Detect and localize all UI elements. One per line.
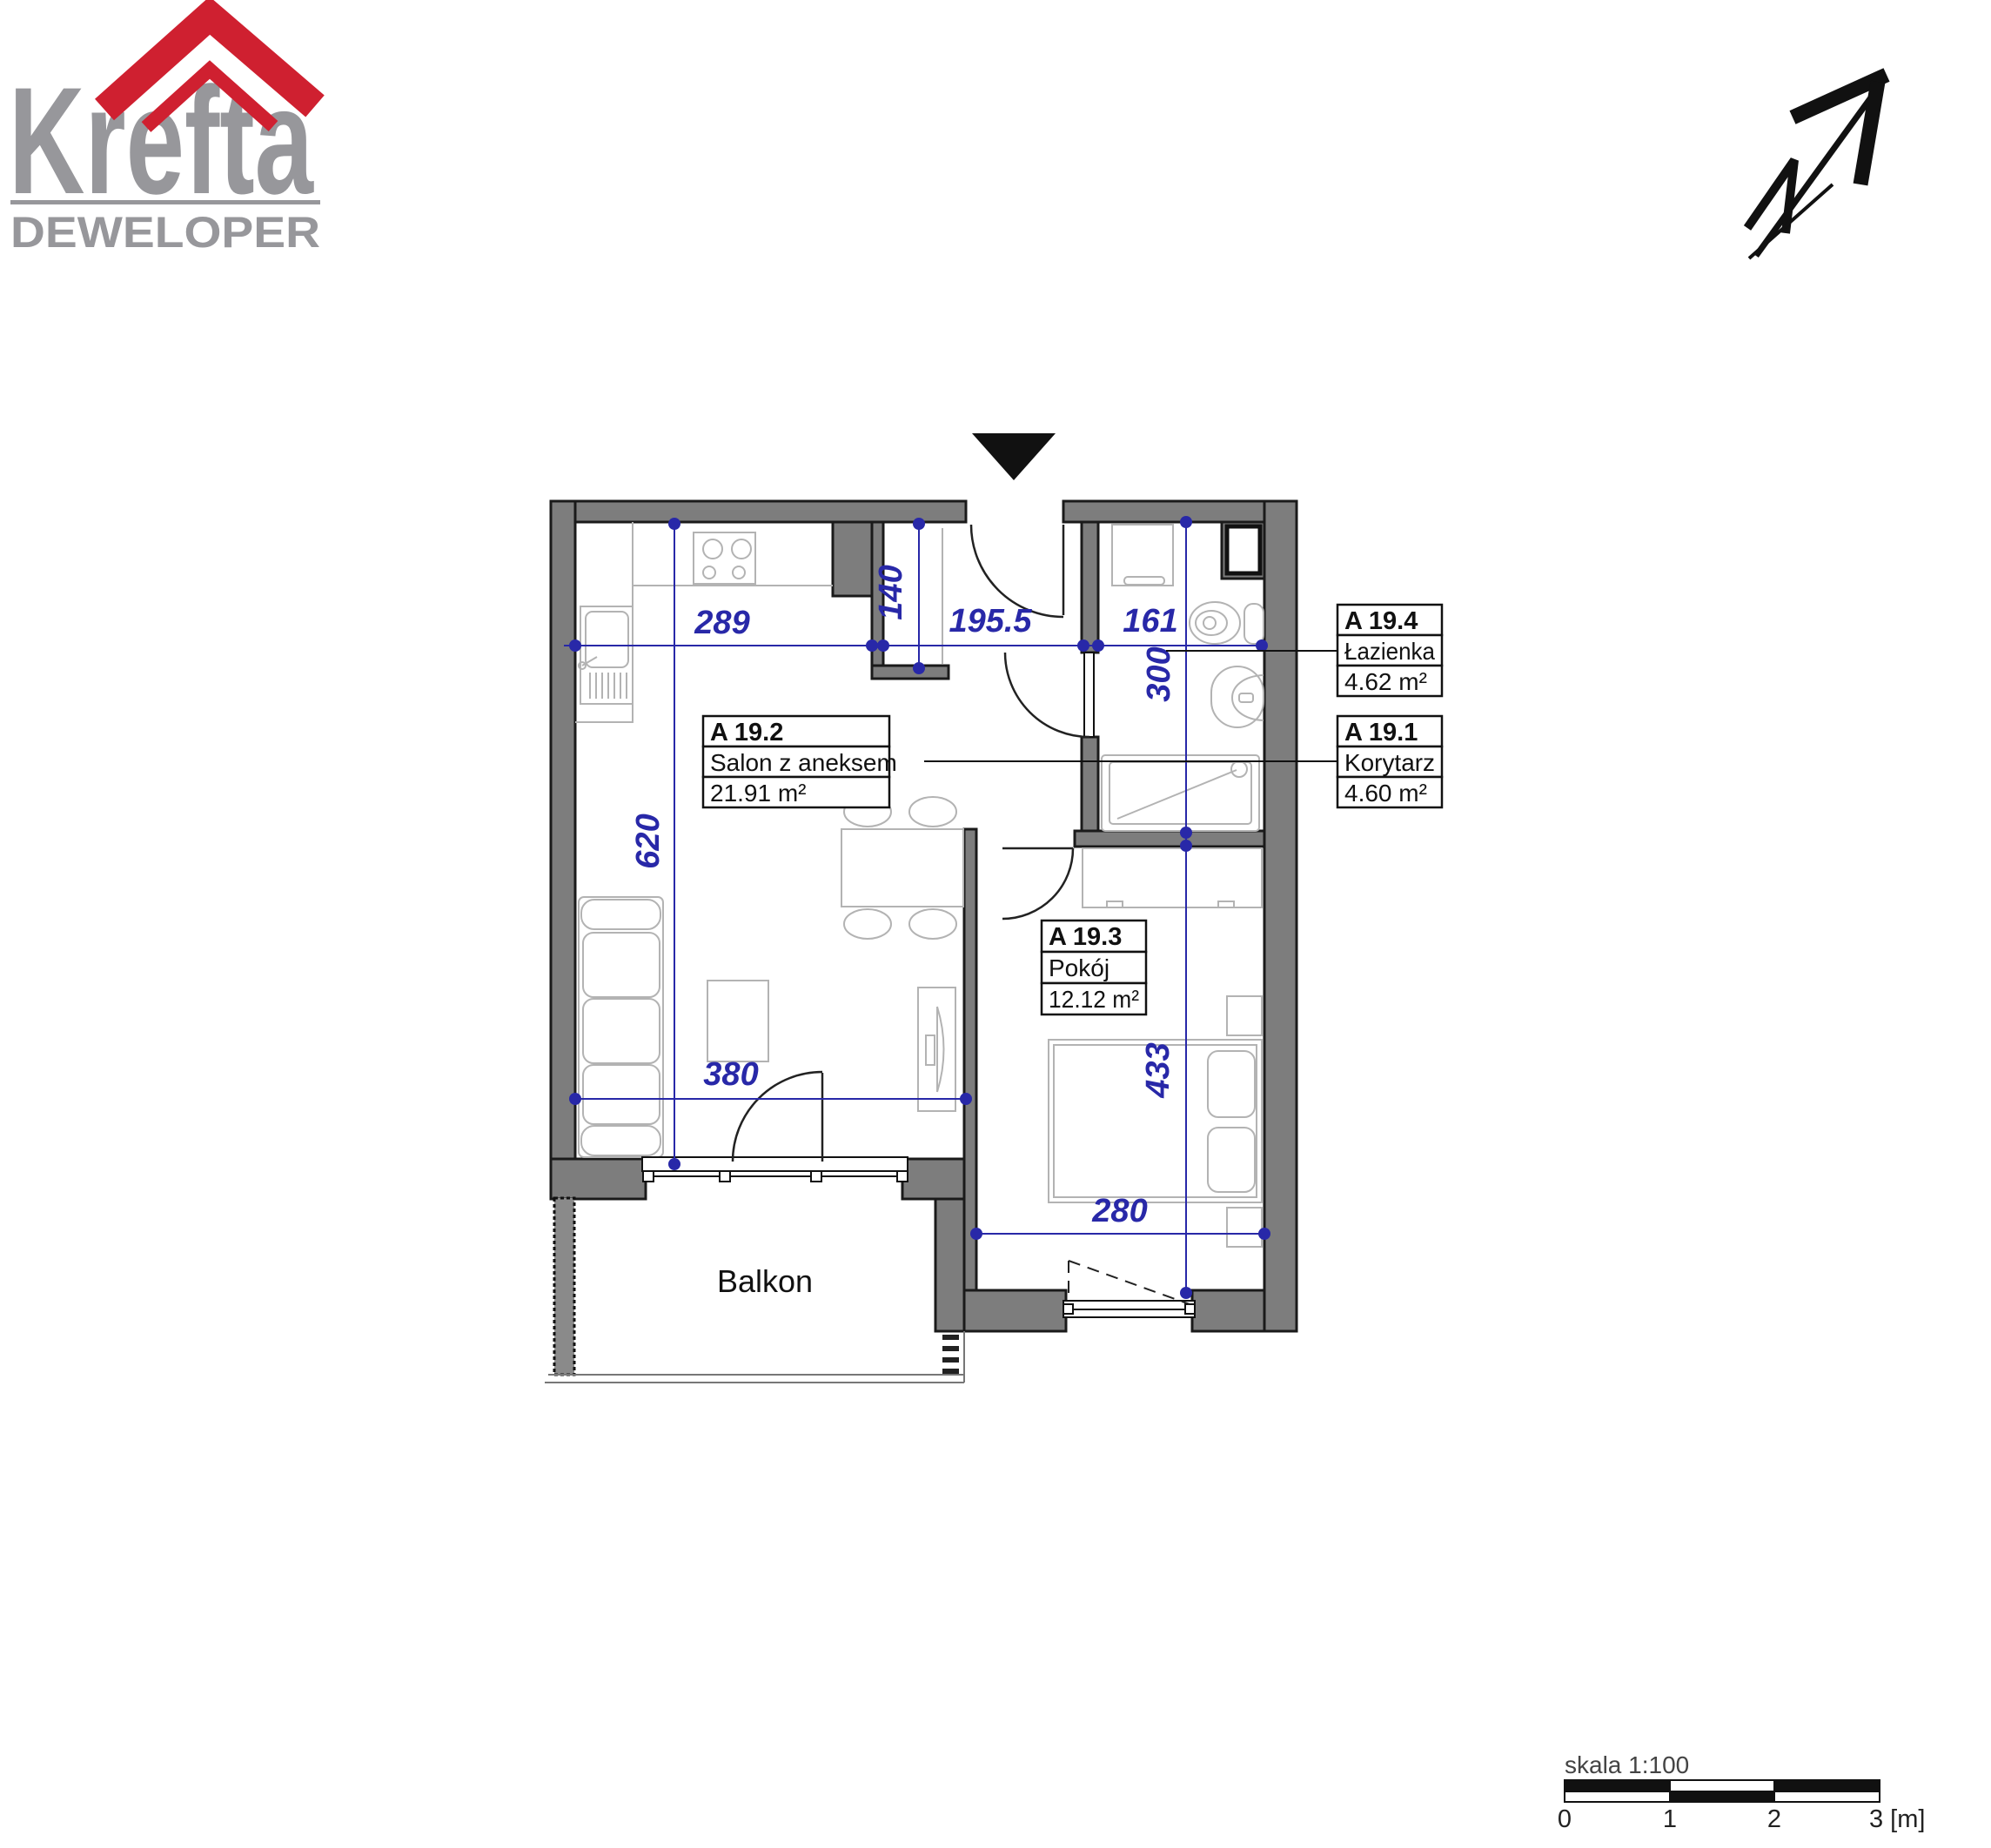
- scale-tick-0: 0: [1558, 1805, 1572, 1833]
- scale-tick-2: 2: [1767, 1805, 1781, 1833]
- scale-bar: skala 1:100 0 1 2 3 [m]: [1558, 1751, 1926, 1833]
- room-name: Łazienka: [1344, 638, 1435, 665]
- dim-140: 140: [873, 565, 909, 619]
- balcony-railing: [554, 1198, 574, 1375]
- window-opening-dashes: [1069, 1261, 1190, 1304]
- dim-300: 300: [1141, 646, 1177, 701]
- room-name: Salon z aneksem: [710, 749, 897, 776]
- nightstand: [1227, 1208, 1262, 1247]
- logo-divider: [10, 200, 320, 204]
- north-arrow-icon: [1747, 75, 1887, 258]
- room-label-pokoj: A 19.3 Pokój 12.12 m²: [1042, 921, 1146, 1014]
- balcony-label: Balkon: [717, 1263, 813, 1299]
- dim-161: 161: [1123, 603, 1177, 639]
- toilet: [1244, 604, 1264, 644]
- logo-subtitle-text: DEWELOPER: [10, 208, 320, 257]
- bathroom-door-leaf: [1084, 653, 1094, 737]
- balcony-railing-segment: [942, 1335, 959, 1374]
- dim-433: 433: [1140, 1042, 1176, 1098]
- scale-label: skala 1:100: [1565, 1751, 1689, 1778]
- nightstand: [1227, 996, 1262, 1035]
- kitchen-furniture: [575, 522, 942, 722]
- room-area: 4.62 m²: [1344, 668, 1427, 695]
- dim-195-5: 195.5: [949, 603, 1032, 639]
- room-id: A 19.1: [1344, 719, 1418, 747]
- chair: [909, 797, 956, 827]
- room-id: A 19.4: [1344, 607, 1418, 635]
- room-area: 21.91 m²: [710, 780, 807, 807]
- scale-bar-cells: [1565, 1780, 1880, 1802]
- developer-logo: Krefta DEWELOPER: [9, 16, 320, 257]
- dim-280: 280: [1091, 1193, 1147, 1229]
- dim-380: 380: [703, 1056, 758, 1093]
- room-area: 4.60 m²: [1344, 780, 1427, 807]
- chair: [844, 909, 891, 939]
- scale-tick-3: 3 [m]: [1869, 1805, 1925, 1833]
- room-label-korytarz: A 19.1 Korytarz 4.60 m²: [1337, 716, 1442, 807]
- duct-niche: [1227, 526, 1260, 573]
- floor-plan: 289 140 195.5 161 300 620 380 433 280 A …: [545, 433, 1442, 1383]
- room-name: Pokój: [1049, 954, 1109, 981]
- pillow: [1208, 1128, 1255, 1192]
- dim-289: 289: [694, 605, 749, 641]
- chair: [909, 909, 956, 939]
- room-name: Korytarz: [1344, 749, 1435, 776]
- entrance-marker-icon: [972, 433, 1056, 480]
- dim-620: 620: [630, 814, 667, 868]
- room-id: A 19.3: [1049, 923, 1122, 951]
- balcony-door-frame: [642, 1157, 908, 1171]
- coffee-table: [707, 981, 768, 1061]
- room-label-lazienka: A 19.4 Łazienka 4.62 m²: [1337, 605, 1442, 696]
- room-area: 12.12 m²: [1049, 986, 1139, 1013]
- room-label-salon: A 19.2 Salon z aneksem 21.91 m²: [703, 716, 897, 807]
- pillow: [1208, 1051, 1255, 1117]
- kitchen-sink: [580, 606, 633, 704]
- bathroom-door-arc: [1005, 653, 1089, 737]
- wardrobe: [1083, 848, 1262, 907]
- dining-table: [841, 829, 963, 907]
- room-id: A 19.2: [710, 719, 783, 747]
- scale-tick-1: 1: [1663, 1805, 1677, 1833]
- room-door-arc: [1002, 848, 1073, 919]
- floor-plan-page: Krefta DEWELOPER: [0, 0, 1991, 1848]
- floor-plan-canvas: Krefta DEWELOPER: [0, 0, 1991, 1848]
